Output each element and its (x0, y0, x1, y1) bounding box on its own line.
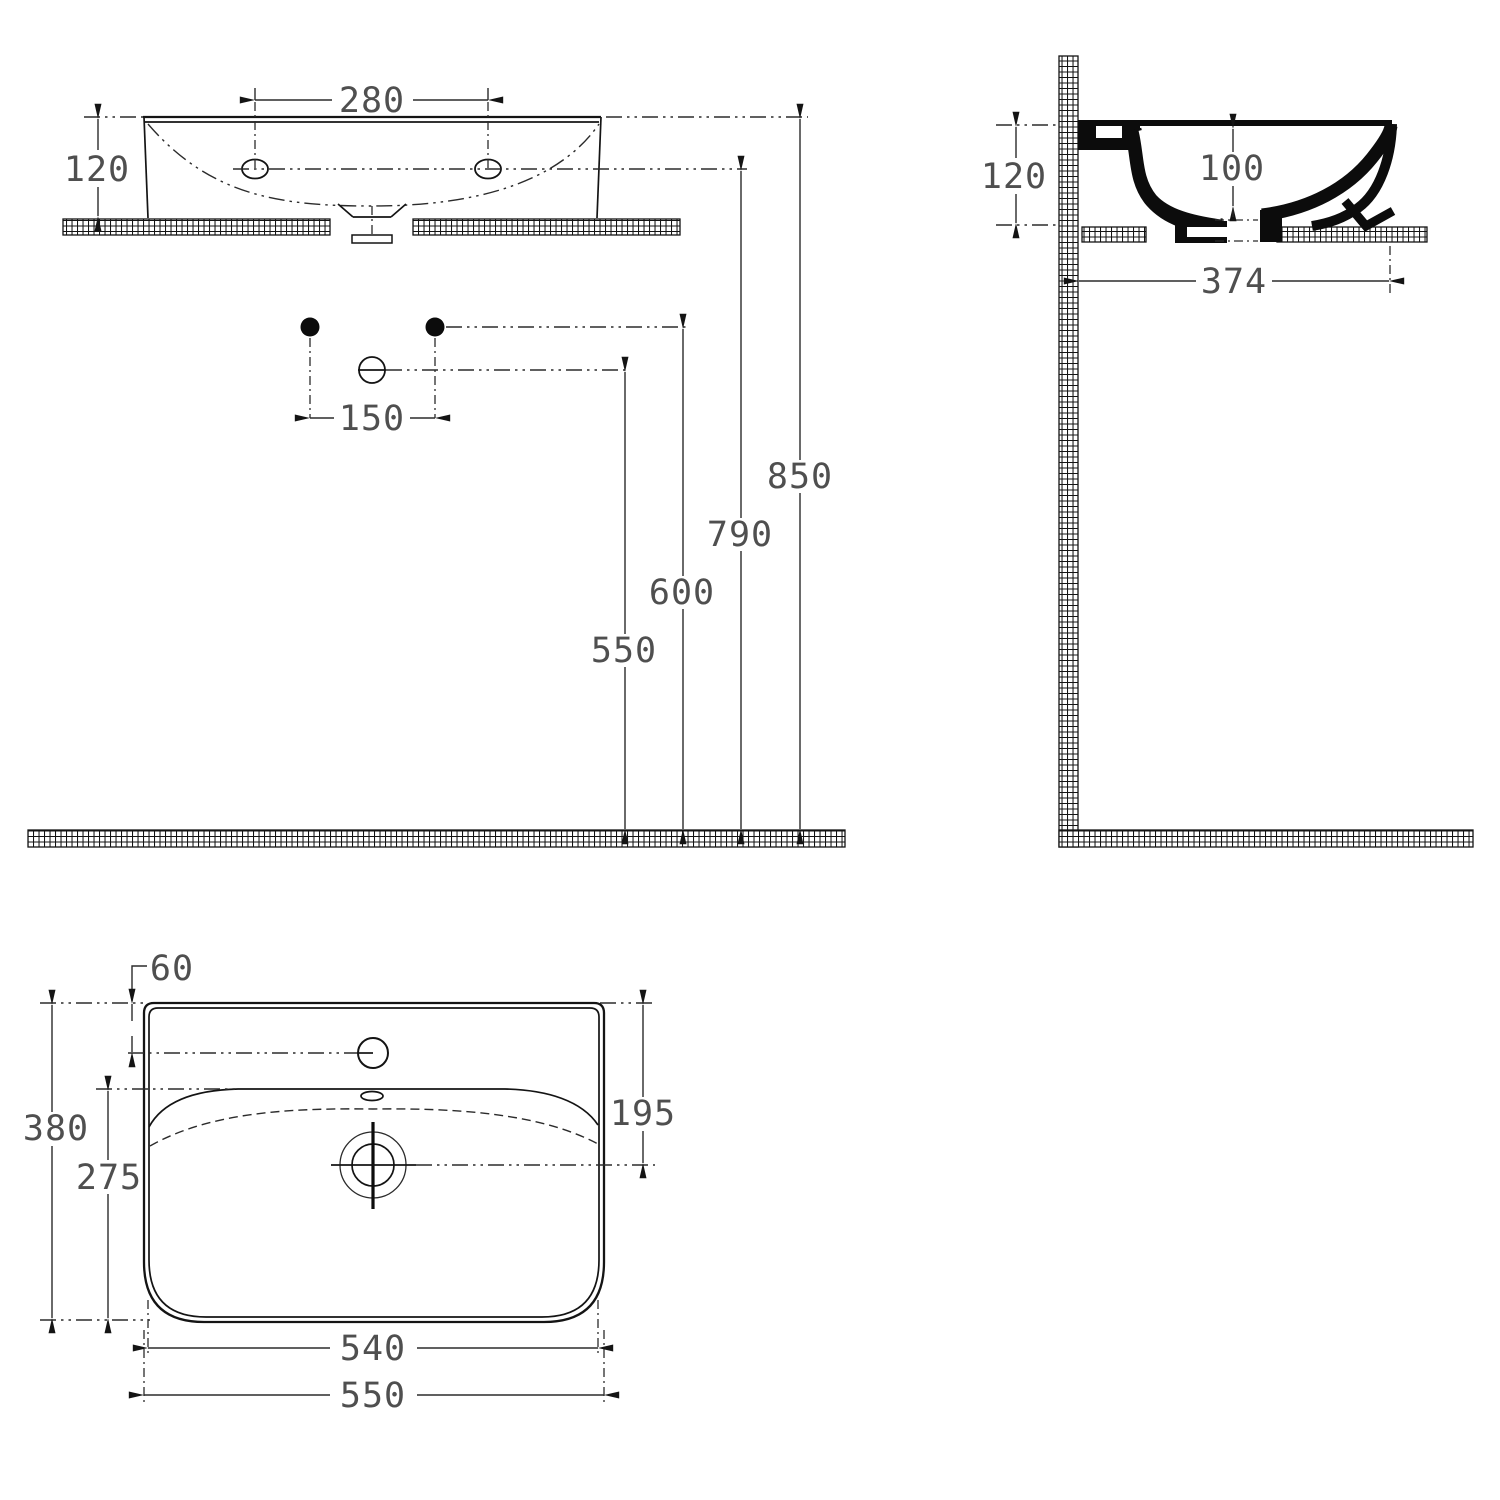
side-counter-left (1082, 227, 1146, 242)
dim-side-120-label: 120 (981, 157, 1047, 197)
side-floor (1059, 830, 1473, 847)
dim-195-label: 195 (610, 1094, 676, 1134)
front-floor (28, 830, 845, 847)
dim-850-label: 850 (767, 457, 833, 497)
dim-550v-label: 550 (591, 631, 657, 671)
dim-150-label: 150 (339, 399, 405, 439)
washbasin-drawing-svg: 280 120 150 550 600 (0, 0, 1500, 1500)
plan-overflow-slot (361, 1092, 383, 1101)
dim-120-label: 120 (64, 150, 130, 190)
dim-374-label: 374 (1201, 262, 1267, 302)
dim-550-label: 550 (340, 1376, 406, 1416)
dim-275-label: 275 (76, 1158, 142, 1198)
front-drain-flange (352, 235, 392, 243)
supply-point-right (426, 318, 445, 337)
dim-60-label: 60 (150, 949, 194, 989)
dim-380-label: 380 (23, 1109, 89, 1149)
dim-600-label: 600 (649, 573, 715, 613)
side-counter-right (1277, 227, 1427, 242)
supply-point-left (301, 318, 320, 337)
technical-drawing-page: 280 120 150 550 600 (0, 0, 1500, 1500)
dim-540-label: 540 (340, 1329, 406, 1369)
dim-790-label: 790 (707, 515, 773, 555)
side-wall (1059, 56, 1078, 847)
dim-280-label: 280 (339, 81, 405, 121)
dim-100-label: 100 (1199, 149, 1265, 189)
